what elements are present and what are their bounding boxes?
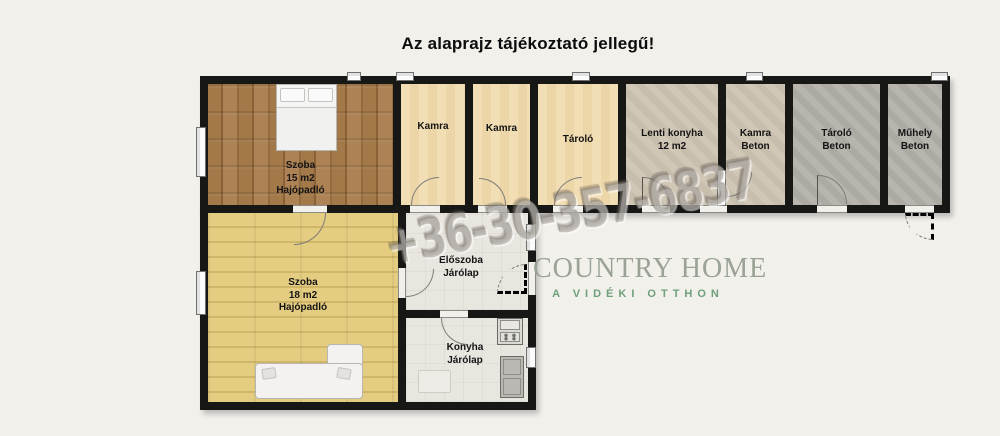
room-label-kamra-2: Kamra — [473, 123, 530, 136]
country-home-logo: COUNTRY HOME A VIDÉKI OTTHON — [533, 253, 743, 300]
label-line: Konyha — [406, 342, 524, 355]
door-opening-konyha — [440, 310, 468, 318]
window-top-2 — [396, 72, 414, 81]
label-line: Járólap — [406, 355, 524, 368]
floor-mat — [418, 370, 451, 393]
door-opening-szoba15-szoba18 — [293, 205, 327, 213]
label-line: Hajópadló — [208, 302, 398, 315]
window-right-konyha — [526, 347, 536, 368]
label-line: 18 m2 — [208, 290, 398, 303]
door-arc-muhely — [905, 213, 934, 240]
door-opening-muhely — [905, 205, 934, 213]
label-line: Műhely — [888, 128, 942, 141]
window-left-szoba15 — [196, 127, 206, 177]
page-title: Az alaprajz tájékoztató jellegű! — [402, 34, 655, 54]
floorplan-canvas: Az alaprajz tájékoztató jellegű! — [0, 0, 1000, 436]
logo-tagline: A VIDÉKI OTTHON — [533, 288, 743, 300]
label-line: Hajópadló — [208, 185, 393, 198]
bed-pillow-left — [280, 88, 305, 102]
room-label-muhely-beton: Műhely Beton — [888, 128, 942, 153]
label-line: 15 m2 — [208, 173, 393, 186]
label-line: Kamra — [726, 128, 785, 141]
label-line: Kamra — [401, 121, 465, 134]
window-left-szoba18 — [196, 271, 206, 315]
fridge-lower-line — [503, 378, 521, 395]
label-line: 12 m2 — [626, 141, 718, 154]
window-top-4 — [746, 72, 763, 81]
sofa-cushion-right — [336, 367, 352, 380]
room-label-tarolo: Tároló — [538, 134, 618, 147]
bed-blanket — [277, 107, 336, 150]
kitchen-counter — [497, 318, 523, 345]
label-line: Kamra — [473, 123, 530, 136]
logo-name: COUNTRY HOME — [533, 253, 743, 285]
stove — [500, 332, 520, 342]
door-opening-tarolo-beton — [817, 205, 847, 213]
window-top-1 — [347, 72, 361, 81]
sink — [500, 320, 520, 330]
room-label-konyha: Konyha Járólap — [406, 342, 524, 367]
bed-pillow-right — [308, 88, 333, 102]
label-line: Tároló — [538, 134, 618, 147]
label-line: Beton — [888, 141, 942, 154]
label-line: Szoba — [208, 160, 393, 173]
room-label-szoba-18: Szoba 18 m2 Hajópadló — [208, 277, 398, 315]
room-label-szoba-15: Szoba 15 m2 Hajópadló — [208, 160, 393, 198]
bed — [276, 84, 337, 151]
room-label-kamra-1: Kamra — [401, 121, 465, 134]
room-label-lenti-konyha: Lenti konyha 12 m2 — [626, 128, 718, 153]
window-top-3 — [572, 72, 590, 81]
label-line: Szoba — [208, 277, 398, 290]
label-line: Lenti konyha — [626, 128, 718, 141]
window-top-5 — [931, 72, 948, 81]
sofa-cushion-left — [261, 367, 276, 380]
